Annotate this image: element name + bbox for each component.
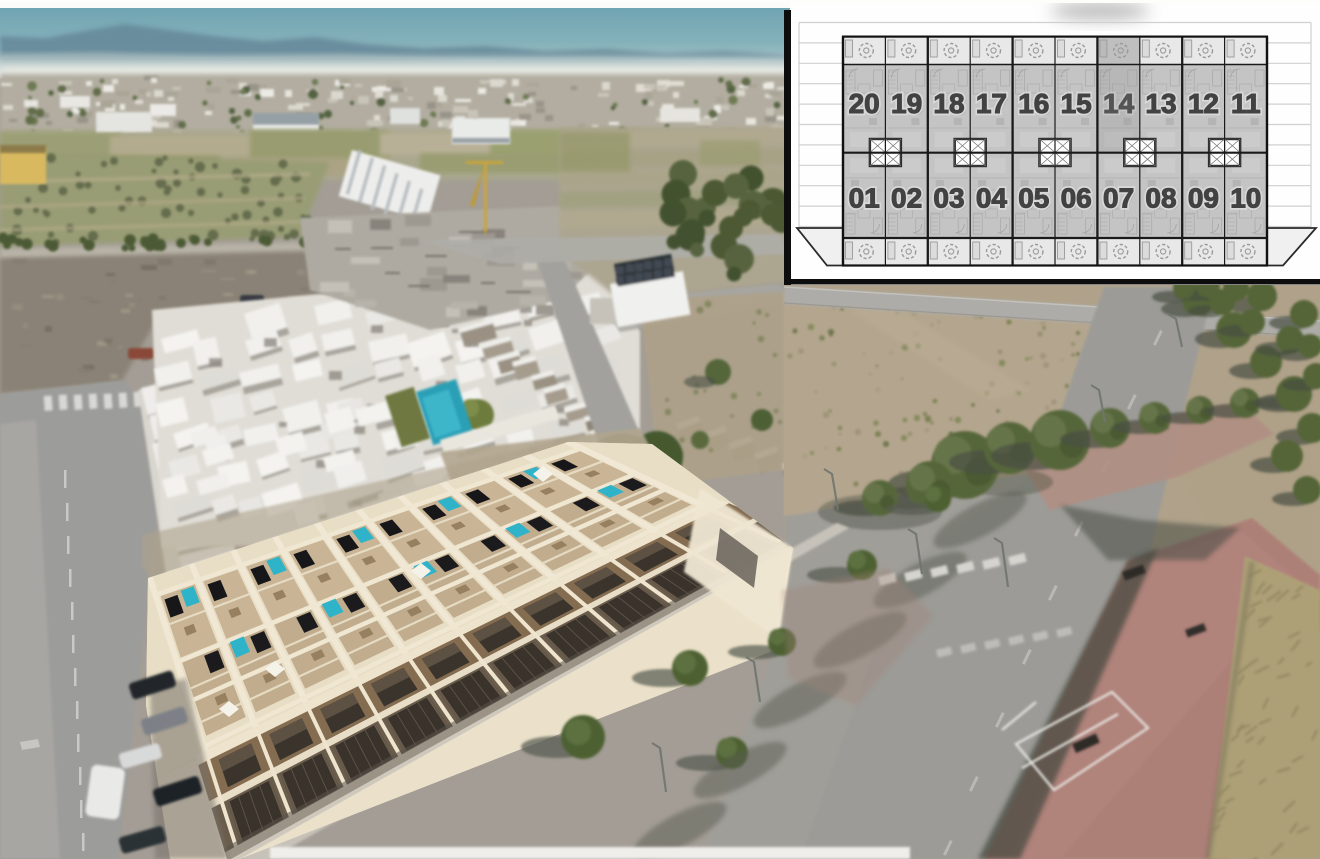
svg-text:07: 07: [1103, 183, 1134, 214]
svg-text:13: 13: [1145, 88, 1176, 119]
svg-text:09: 09: [1188, 183, 1219, 214]
svg-text:20: 20: [849, 88, 880, 119]
svg-text:11: 11: [1231, 88, 1261, 119]
svg-text:01: 01: [849, 183, 880, 214]
svg-text:18: 18: [933, 88, 964, 119]
svg-text:12: 12: [1188, 88, 1219, 119]
svg-text:10: 10: [1230, 183, 1261, 214]
svg-text:03: 03: [933, 183, 964, 214]
svg-text:16: 16: [1018, 88, 1049, 119]
svg-text:06: 06: [1061, 183, 1092, 214]
svg-text:15: 15: [1061, 88, 1092, 119]
svg-text:17: 17: [976, 88, 1007, 119]
svg-text:04: 04: [976, 183, 1008, 214]
svg-text:19: 19: [891, 88, 922, 119]
svg-text:05: 05: [1018, 183, 1049, 214]
svg-text:08: 08: [1145, 183, 1176, 214]
svg-text:02: 02: [891, 183, 922, 214]
